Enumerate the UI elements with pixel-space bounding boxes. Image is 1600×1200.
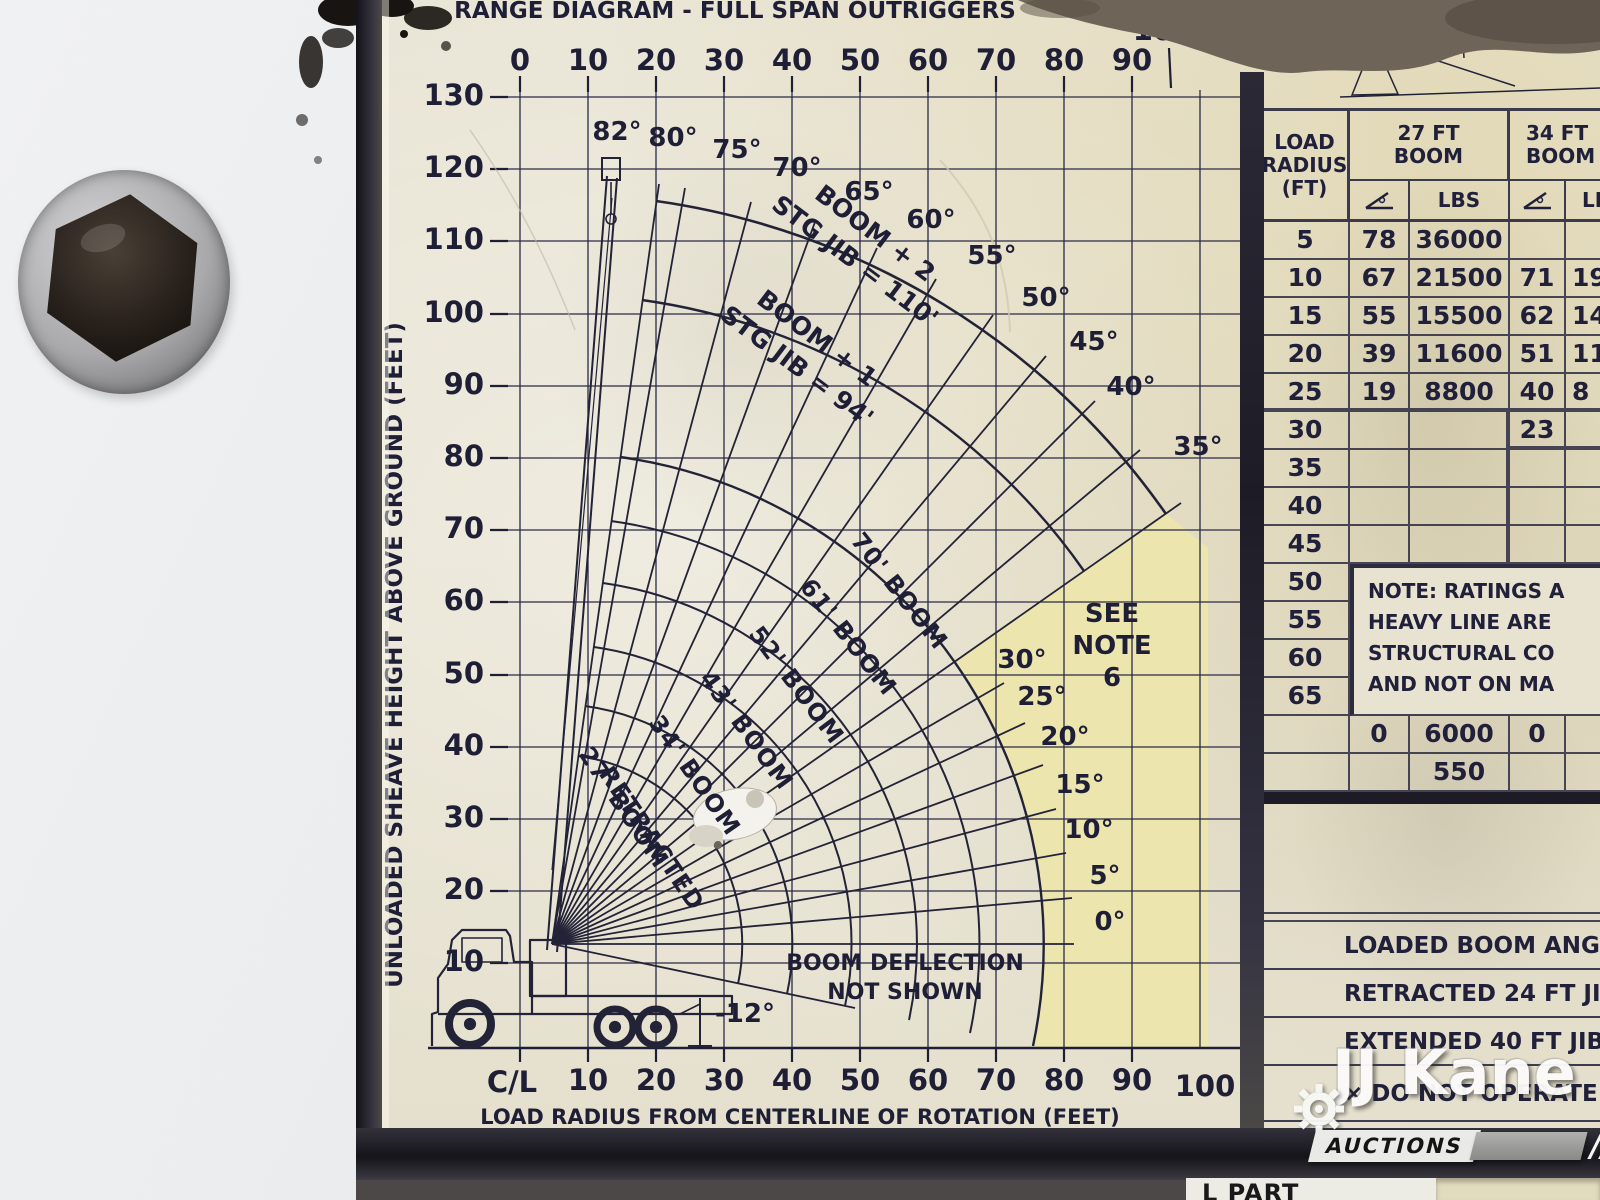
header-text: RADIUS <box>1262 154 1348 177</box>
left-axis-tick-label: 30 <box>444 800 484 834</box>
top-axis-tick-label: 70 <box>976 43 1016 77</box>
cell-angle-34 <box>1510 450 1566 488</box>
see-note-label: 6 <box>1103 663 1121 693</box>
col-header-lbs: LBS <box>1566 181 1600 219</box>
cell-lbs-27 <box>1410 450 1510 488</box>
header-text: LOAD <box>1274 131 1335 154</box>
header-text: LBS <box>1582 188 1600 212</box>
table-row: 30 23 <box>1262 412 1600 450</box>
left-axis-tick-label: 100 <box>423 295 484 329</box>
col-header-27ft-boom: 27 FT BOOM <box>1350 111 1510 179</box>
header-text: LBS <box>1438 188 1480 212</box>
load-rating-table: LOAD RADIUS (FT) 27 FT BOOM 34 FT BOOM <box>1262 108 1600 1128</box>
table-row: 10 67 21500 71 195 <box>1262 260 1600 298</box>
footer-row-loaded-boom-angle: LOADED BOOM ANGLE <box>1262 922 1600 970</box>
cell-lbs-34 <box>1566 754 1600 792</box>
cell-lbs-34 <box>1566 526 1600 564</box>
note-text: AND NOT ON MA <box>1368 669 1600 700</box>
left-axis-tick-label: 130 <box>423 78 484 112</box>
left-axis-tick-label: 20 <box>444 872 484 906</box>
angle-label: 82° <box>592 117 641 147</box>
deflection-note: BOOM DEFLECTION <box>786 951 1024 976</box>
col-header-load-radius: LOAD RADIUS (FT) <box>1262 111 1350 222</box>
see-note-label: SEE <box>1085 599 1139 629</box>
stowed-boom-drawing <box>547 158 620 952</box>
watermark-auctions-text: AUCTIONS <box>1308 1130 1481 1162</box>
cell-radius: 65 <box>1262 678 1350 716</box>
bottom-axis-tick-label: 60 <box>908 1063 948 1097</box>
col-header-lbs: LBS <box>1410 181 1510 219</box>
cell-angle-27 <box>1350 450 1410 488</box>
note-text: NOTE: RATINGS A <box>1368 576 1600 607</box>
cell-radius: 10 <box>1262 260 1350 298</box>
cell-radius <box>1262 716 1350 754</box>
cell-lbs-27: 8800 <box>1410 374 1510 412</box>
top-axis-tick-label: 60 <box>908 43 948 77</box>
angle-label: 55° <box>967 241 1016 271</box>
table-row: 25 19 8800 40 8 <box>1262 374 1600 412</box>
left-axis-tick-label: 70 <box>444 511 484 545</box>
note-text: STRUCTURAL CO <box>1368 638 1600 669</box>
watermark-slashes: // <box>1590 1129 1600 1164</box>
header-text: BOOM <box>1526 145 1600 168</box>
header-text: 27 FT <box>1397 122 1459 145</box>
watermark-gray-strip <box>1469 1132 1587 1160</box>
boom-angle-icon <box>1350 181 1410 219</box>
cell-angle-27 <box>1350 488 1410 526</box>
left-axis-tick-label: 90 <box>444 367 484 401</box>
top-axis-tick-label: 10 <box>568 43 608 77</box>
top-axis-tick-label: 40 <box>772 43 812 77</box>
cell-angle-27: 39 <box>1350 336 1410 374</box>
cell-angle-34: 0 <box>1510 716 1566 754</box>
table-divider-bar <box>1262 792 1600 804</box>
cell-radius: 45 <box>1262 526 1350 564</box>
col-header-34ft-boom: 34 FT BOOM <box>1510 111 1600 179</box>
cell-angle-27 <box>1350 412 1410 450</box>
left-axis-tick-label: 80 <box>444 439 484 473</box>
cell-angle-34: 71 <box>1510 260 1566 298</box>
cell-lbs-27: 550 <box>1410 754 1510 792</box>
angle-label: 80° <box>648 123 697 153</box>
watermark-auctions-bar: AUCTIONS // <box>1312 1130 1600 1162</box>
placard-frame-divider <box>1240 72 1264 1128</box>
cell-lbs-27 <box>1410 526 1510 564</box>
angle-label: 25° <box>1017 682 1066 712</box>
left-axis-tick-label: 110 <box>423 222 484 256</box>
cell-angle-34: 40 <box>1510 374 1566 412</box>
cell-radius <box>1262 754 1350 792</box>
cell-radius: 40 <box>1262 488 1350 526</box>
angle-label: 20° <box>1040 722 1089 752</box>
bottom-axis-tick-label: 40 <box>772 1063 812 1097</box>
left-axis-tick-label: 40 <box>444 728 484 762</box>
bottom-axis-tick-label: 20 <box>636 1063 676 1097</box>
cell-angle-34 <box>1510 754 1566 792</box>
cell-lbs-27: 11600 <box>1410 336 1510 374</box>
bottom-axis-tick-label: 30 <box>704 1063 744 1097</box>
angle-label: 10° <box>1064 815 1113 845</box>
top-axis-tick-label: 20 <box>636 43 676 77</box>
cell-lbs-27 <box>1410 488 1510 526</box>
angle-label: 5° <box>1089 861 1120 891</box>
bottom-strip-dark <box>356 1180 1186 1200</box>
cell-lbs-34: 8 <box>1566 374 1600 412</box>
table-row: 40 <box>1262 488 1600 526</box>
cell-lbs-34: 112 <box>1566 336 1600 374</box>
left-axis-tick-label: 120 <box>423 150 484 184</box>
see-note-label: NOTE <box>1072 631 1151 661</box>
top-axis-tick-label: 80 <box>1044 43 1084 77</box>
auction-watermark: JJ Kane AUCTIONS // <box>1288 1036 1600 1186</box>
cell-lbs-27: 21500 <box>1410 260 1510 298</box>
header-text: BOOM <box>1394 145 1463 168</box>
table-row-aux: 550 <box>1262 754 1600 792</box>
angle-label: 75° <box>712 135 761 165</box>
cell-radius: 15 <box>1262 298 1350 336</box>
cell-lbs-34: 195 <box>1566 260 1600 298</box>
bottom-axis-tick-label: C/L <box>487 1065 537 1099</box>
cell-angle-34: 51 <box>1510 336 1566 374</box>
angle-label: 15° <box>1055 770 1104 800</box>
bottom-axis-tick-label: 70 <box>976 1063 1016 1097</box>
cell-angle-34: 23 <box>1510 412 1566 450</box>
placard-edge-highlight <box>382 0 389 1200</box>
cell-angle-27: 19 <box>1350 374 1410 412</box>
photo-of-crane-load-placard: RANGE DIAGRAM - FULL SPAN OUTRIGGERS 0 1… <box>0 0 1600 1200</box>
cell-radius: 20 <box>1262 336 1350 374</box>
bottom-axis-title: LOAD RADIUS FROM CENTERLINE OF ROTATION … <box>480 1105 1120 1129</box>
cell-angle-27: 78 <box>1350 222 1410 260</box>
negative-angle-label: -12° <box>715 999 775 1029</box>
cell-lbs-34 <box>1566 412 1600 450</box>
cell-radius: 55 <box>1262 602 1350 640</box>
top-shadow-band <box>1018 0 1600 73</box>
angle-label: 30° <box>997 645 1046 675</box>
cell-radius: 50 <box>1262 564 1350 602</box>
header-text: 34 FT <box>1526 122 1600 145</box>
table-row: 20 39 11600 51 112 <box>1262 336 1600 374</box>
boom-angle-icon <box>1510 181 1566 219</box>
cell-angle-27 <box>1350 526 1410 564</box>
table-row-zero-angle: 0 6000 0 <box>1262 716 1600 754</box>
cell-angle-27: 67 <box>1350 260 1410 298</box>
cell-lbs-27: 6000 <box>1410 716 1510 754</box>
table-header: LOAD RADIUS (FT) 27 FT BOOM 34 FT BOOM <box>1262 108 1600 222</box>
table-row: 45 <box>1262 526 1600 564</box>
bottom-axis-tick-label: 100 <box>1175 1069 1236 1103</box>
table-row: 35 <box>1262 450 1600 488</box>
cell-angle-27: 55 <box>1350 298 1410 336</box>
bottom-axis-tick-label: 90 <box>1112 1063 1152 1097</box>
cell-lbs-27: 15500 <box>1410 298 1510 336</box>
cell-angle-34: 62 <box>1510 298 1566 336</box>
placard-frame-left <box>356 0 382 1200</box>
angle-label: 60° <box>906 205 955 235</box>
cell-radius: 30 <box>1262 412 1350 450</box>
cell-angle-34 <box>1510 222 1566 260</box>
table-row: 5 78 36000 <box>1262 222 1600 260</box>
cell-lbs-27: 36000 <box>1410 222 1510 260</box>
cell-lbs-34 <box>1566 450 1600 488</box>
bottom-axis-tick-label: 50 <box>840 1063 880 1097</box>
top-axis-tick-label: 50 <box>840 43 880 77</box>
angle-label: 40° <box>1106 372 1155 402</box>
deflection-note: NOT SHOWN <box>827 980 982 1005</box>
left-axis-tick-label: 10 <box>444 944 484 978</box>
cell-lbs-34: 147 <box>1566 298 1600 336</box>
cell-radius: 35 <box>1262 450 1350 488</box>
cell-lbs-27 <box>1410 412 1510 450</box>
angle-label: 50° <box>1021 283 1070 313</box>
footer-row-retracted-jib: RETRACTED 24 FT JIB <box>1262 970 1600 1018</box>
cell-radius: 60 <box>1262 640 1350 678</box>
left-axis-tick-label: 50 <box>444 656 484 690</box>
bottom-axis-tick-label: 10 <box>568 1063 608 1097</box>
cell-angle-34 <box>1510 488 1566 526</box>
cell-lbs-34 <box>1566 716 1600 754</box>
diagram-title: RANGE DIAGRAM - FULL SPAN OUTRIGGERS <box>454 0 1016 24</box>
top-axis-tick-label: 0 <box>510 43 530 77</box>
angle-label: 70° <box>772 153 821 183</box>
angle-label: 0° <box>1094 907 1125 937</box>
table-row: 15 55 15500 62 147 <box>1262 298 1600 336</box>
note-text: HEAVY LINE ARE <box>1368 607 1600 638</box>
cell-angle-27: 0 <box>1350 716 1410 754</box>
watermark-brand-text: JJ Kane <box>1332 1036 1576 1109</box>
cell-radius: 5 <box>1262 222 1350 260</box>
table-note: NOTE: RATINGS A HEAVY LINE ARE STRUCTURA… <box>1350 564 1600 716</box>
cell-lbs-34 <box>1566 488 1600 526</box>
cell-angle-34 <box>1510 526 1566 564</box>
cell-angle-27 <box>1350 754 1410 792</box>
footer-spacer-row <box>1262 912 1600 922</box>
angle-label: 35° <box>1173 432 1222 462</box>
top-axis-tick-label: 30 <box>704 43 744 77</box>
bottom-axis-tick-label: 80 <box>1044 1063 1084 1097</box>
cell-lbs-34 <box>1566 222 1600 260</box>
header-text: (FT) <box>1282 177 1328 200</box>
cell-radius: 25 <box>1262 374 1350 412</box>
angle-label: 45° <box>1069 327 1118 357</box>
top-axis-tick-label: 90 <box>1112 43 1152 77</box>
left-axis-tick-label: 60 <box>444 583 484 617</box>
